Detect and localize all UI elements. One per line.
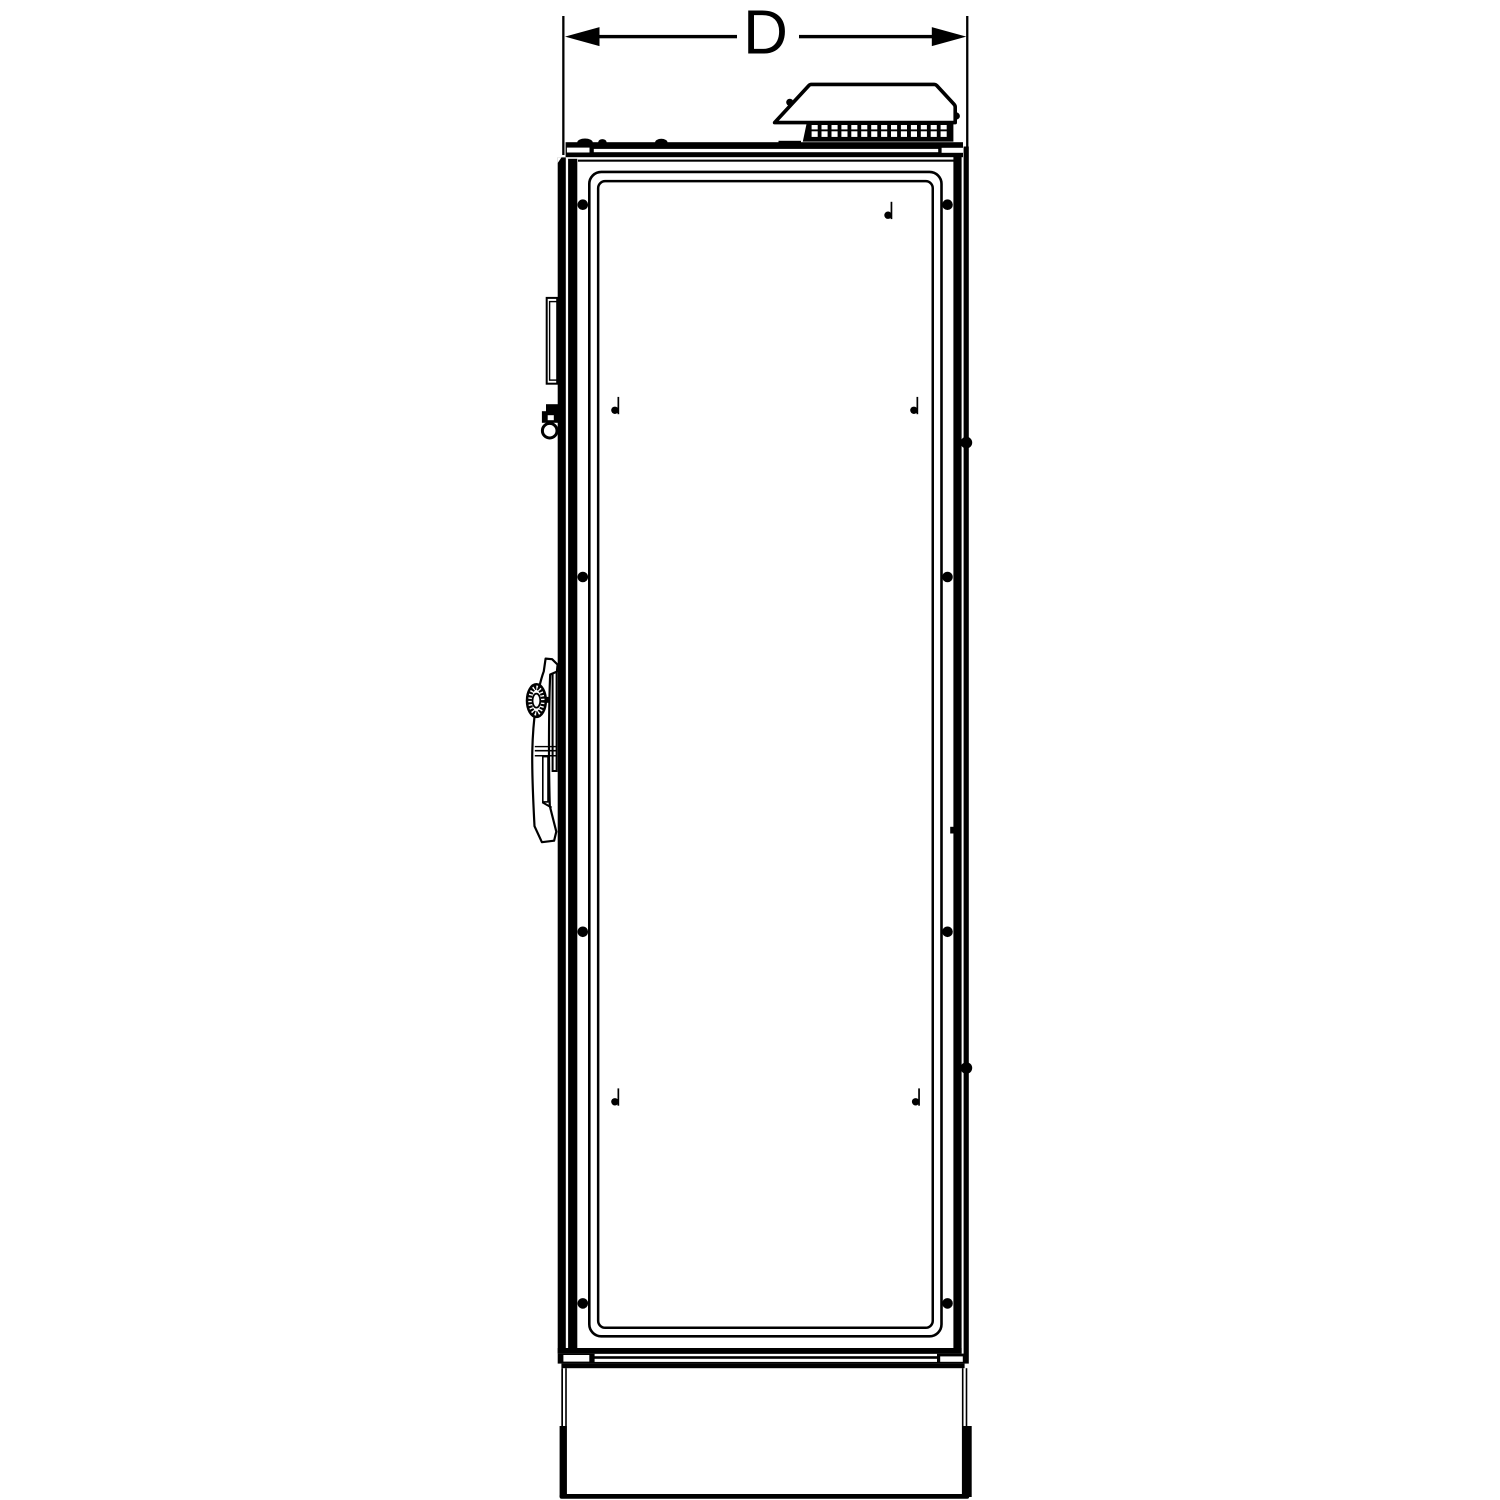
svg-text:D: D xyxy=(743,0,788,67)
